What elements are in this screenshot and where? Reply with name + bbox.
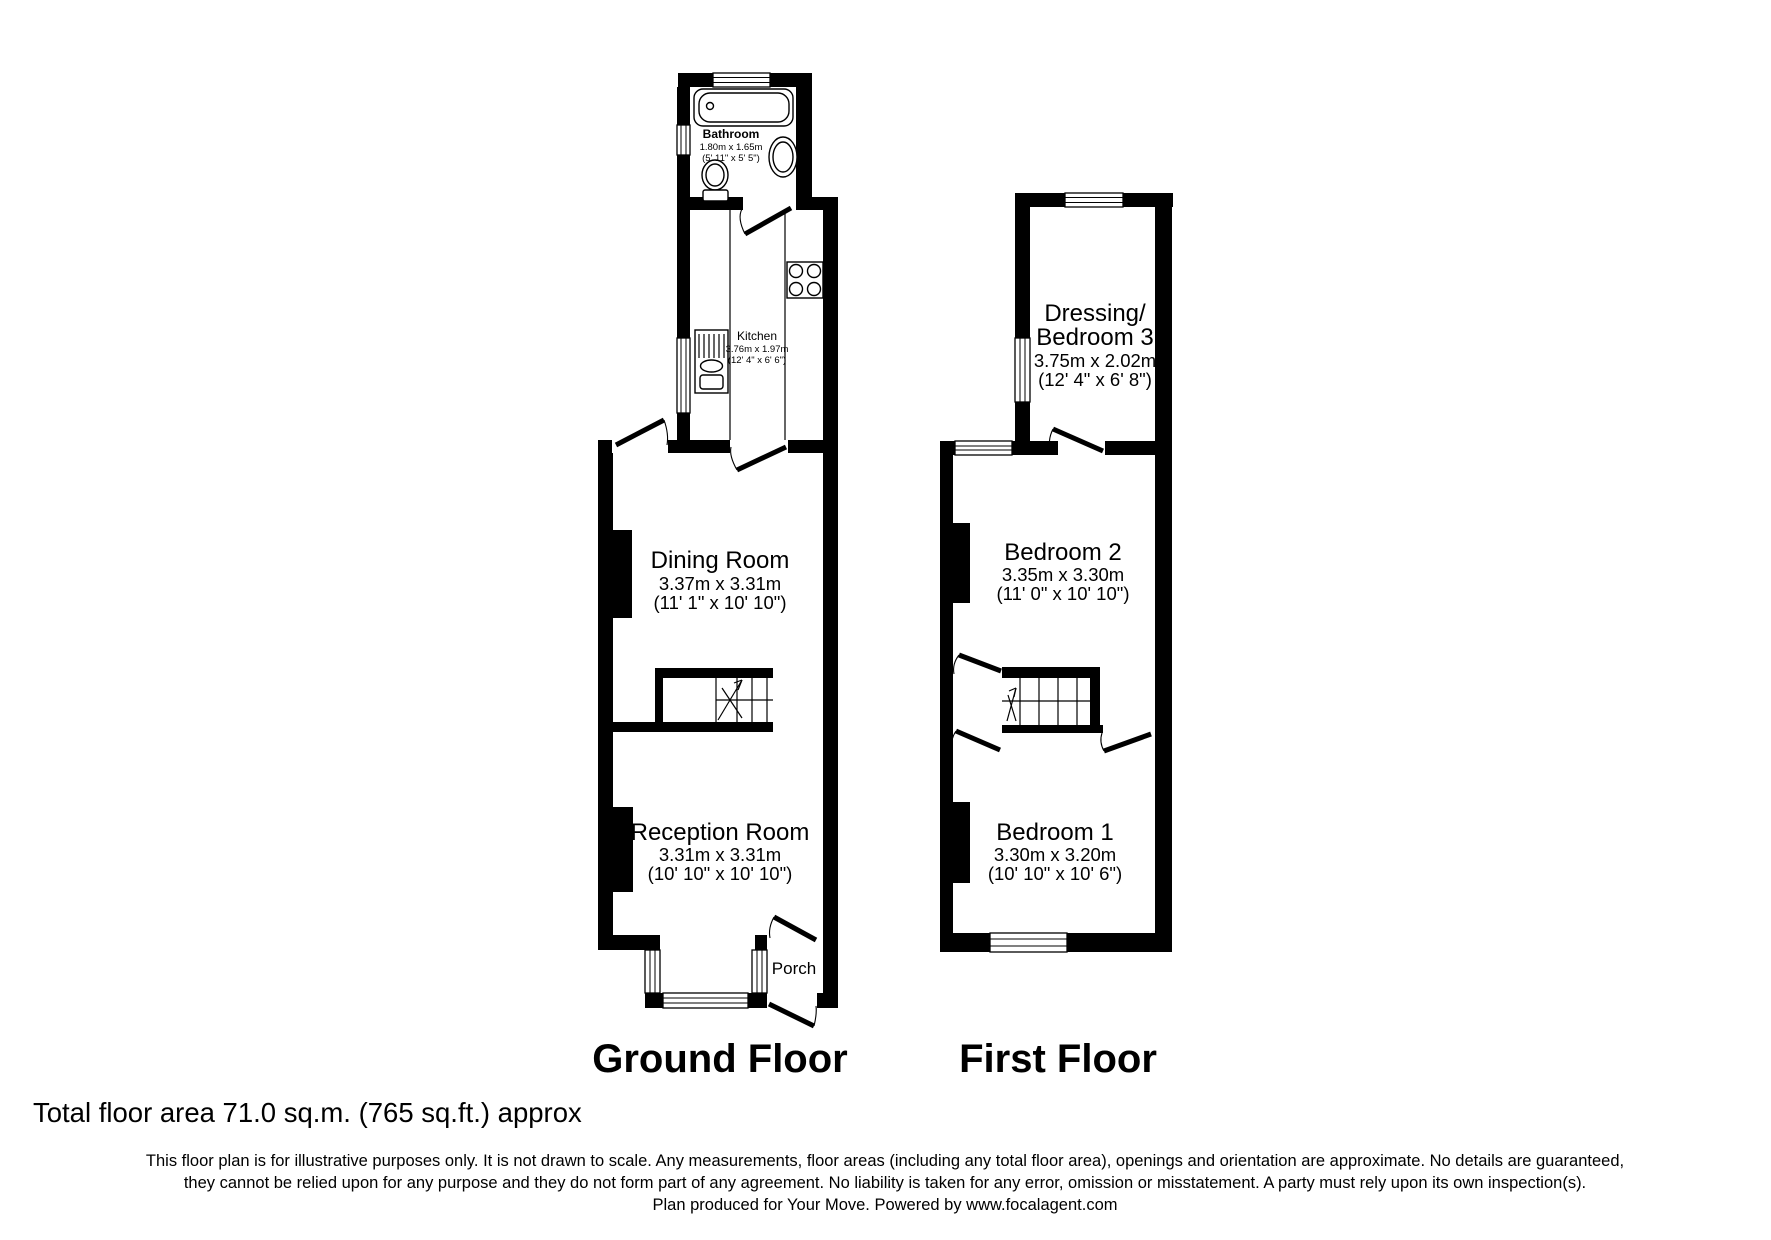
window-glass [713, 73, 770, 87]
window-kitchen-left [677, 338, 690, 413]
door-front-entrance [769, 1004, 816, 1026]
hob-burner [808, 283, 821, 296]
window-dressing-top [1065, 193, 1123, 207]
door-leaf [769, 1004, 814, 1026]
window-glass [990, 933, 1067, 952]
room-dim-imperial: (11' 1" x 10' 10") [654, 592, 787, 613]
door-leaf [774, 917, 816, 940]
toilet-bowl [706, 164, 724, 186]
room-name: Kitchen [737, 329, 777, 343]
toilet-cistern [703, 190, 728, 201]
room-dim-imperial: (10' 10" x 10' 10") [648, 863, 793, 884]
door-landing-upper [954, 655, 1001, 674]
first-floor-plan: Dressing/ Bedroom 3 3.75m x 2.02m (12' 4… [940, 193, 1173, 1081]
room-name-line1: Dressing/ [1044, 300, 1146, 327]
window-glass [645, 950, 660, 993]
window-bathroom-top [713, 73, 770, 87]
disclaimer-line-1: This floor plan is for illustrative purp… [146, 1152, 1624, 1170]
door-arc [664, 420, 668, 445]
room-name: Bedroom 2 [1004, 539, 1121, 566]
total-floor-area: Total floor area 71.0 sq.m. (765 sq.ft.)… [33, 1097, 582, 1128]
room-name: Bedroom 1 [996, 819, 1113, 846]
door-leaf [956, 731, 1000, 750]
window-bay-left [645, 950, 660, 993]
door-arc [814, 1006, 816, 1026]
room-dim-metric: 3.76m x 1.97m [726, 344, 789, 355]
toilet [702, 160, 728, 201]
label-porch: Porch [772, 959, 816, 978]
room-dim-imperial: (11' 0" x 10' 10") [997, 583, 1130, 604]
sink-oval [701, 360, 723, 372]
footer: Total floor area 71.0 sq.m. (765 sq.ft.)… [33, 1097, 1624, 1214]
room-dim-metric: 1.80m x 1.65m [700, 142, 763, 153]
door-leaf [616, 420, 664, 445]
door-bathroom [740, 208, 791, 234]
window-glass [677, 338, 690, 413]
floor-plan-page: Bathroom 1.80m x 1.65m (5' 11" x 5' 5") … [0, 0, 1771, 1240]
door-arc [770, 917, 775, 938]
bathtub-drain [707, 103, 714, 110]
room-dim-imperial: (10' 10" x 10' 6") [988, 863, 1122, 884]
stair-arrow [1008, 695, 1016, 721]
door-arc [1101, 733, 1104, 751]
door-reception-to-porch [770, 917, 817, 940]
window-glass [752, 950, 767, 993]
bathtub [694, 89, 793, 126]
kitchen-sink-unit [695, 330, 728, 393]
disclaimer-line-3: Plan produced for Your Move. Powered by … [652, 1196, 1117, 1214]
door-arc [740, 209, 745, 234]
window-glass [1065, 193, 1123, 207]
room-dim-imperial: (12' 4" x 6' 6") [728, 355, 786, 366]
room-dim-metric: 3.75m x 2.02m [1034, 350, 1156, 371]
stairs-ground [716, 678, 773, 722]
door-arc [954, 655, 959, 674]
room-dim-metric: 3.37m x 3.31m [659, 573, 781, 594]
label-bedroom1: Bedroom 1 3.30m x 3.20m (10' 10" x 10' 6… [988, 819, 1122, 884]
door-kitchen-to-dining [731, 447, 786, 470]
door-bedroom1 [1101, 733, 1151, 751]
window-bathroom-left [677, 125, 690, 155]
door-side-exit [616, 420, 668, 445]
sink-basin [700, 375, 723, 389]
door-arc [731, 447, 737, 470]
window-reception-front [663, 993, 748, 1008]
room-dim-metric: 3.31m x 3.31m [659, 844, 781, 865]
window-glass [663, 993, 748, 1008]
disclaimer-line-2: they cannot be relied upon for any purpo… [184, 1174, 1586, 1192]
ground-floor-title: Ground Floor [592, 1037, 848, 1081]
chimney-breast-bedroom2 [953, 523, 970, 603]
window-glass [1015, 338, 1030, 402]
hob-burner [790, 265, 803, 278]
basin [769, 137, 797, 177]
stairs-first [1002, 678, 1090, 725]
room-dim-imperial: (5' 11" x 5' 5") [702, 153, 760, 164]
hob-burner [808, 265, 821, 278]
window-bay-right [752, 950, 767, 993]
room-dim-metric: 3.35m x 3.30m [1002, 564, 1124, 585]
room-dim-metric: 3.30m x 3.20m [994, 844, 1116, 865]
door-leaf [1104, 734, 1151, 751]
room-name: Reception Room [631, 819, 810, 846]
window-bedroom2-top [955, 441, 1012, 455]
chimney-breast-bedroom1 [953, 802, 970, 883]
hob [787, 262, 823, 298]
door-leaf [1053, 429, 1103, 451]
window-bedroom1-bottom [990, 933, 1067, 952]
door-leaf [737, 447, 786, 470]
label-bedroom2: Bedroom 2 3.35m x 3.30m (11' 0" x 10' 10… [997, 539, 1130, 604]
room-name-line2: Bedroom 3 [1036, 324, 1153, 351]
room-name: Bathroom [703, 127, 760, 141]
first-floor-title: First Floor [959, 1037, 1157, 1081]
label-dressing-bedroom3: Dressing/ Bedroom 3 3.75m x 2.02m (12' 4… [1034, 300, 1156, 390]
room-name: Dining Room [651, 547, 790, 574]
door-leaf [745, 208, 791, 234]
window-dressing-left [1015, 338, 1030, 402]
label-kitchen: Kitchen 3.76m x 1.97m (12' 4" x 6' 6") [726, 329, 789, 366]
basin-bowl [773, 142, 793, 172]
stair-arrow [722, 688, 742, 718]
room-dim-imperial: (12' 4" x 6' 8") [1038, 369, 1152, 390]
window-glass [677, 125, 690, 155]
door-landing-lower [952, 731, 1001, 750]
hob-burner [790, 283, 803, 296]
floor-plan-svg: Bathroom 1.80m x 1.65m (5' 11" x 5' 5") … [0, 0, 1771, 1240]
door-leaf [959, 655, 1001, 671]
ground-floor-plan: Bathroom 1.80m x 1.65m (5' 11" x 5' 5") … [592, 73, 848, 1081]
label-dining-room: Dining Room 3.37m x 3.31m (11' 1" x 10' … [651, 547, 790, 613]
chimney-breast-dining [613, 530, 632, 618]
label-bathroom: Bathroom 1.80m x 1.65m (5' 11" x 5' 5") [700, 127, 763, 164]
label-reception-room: Reception Room 3.31m x 3.31m (10' 10" x … [631, 819, 810, 884]
window-glass [955, 441, 1012, 455]
